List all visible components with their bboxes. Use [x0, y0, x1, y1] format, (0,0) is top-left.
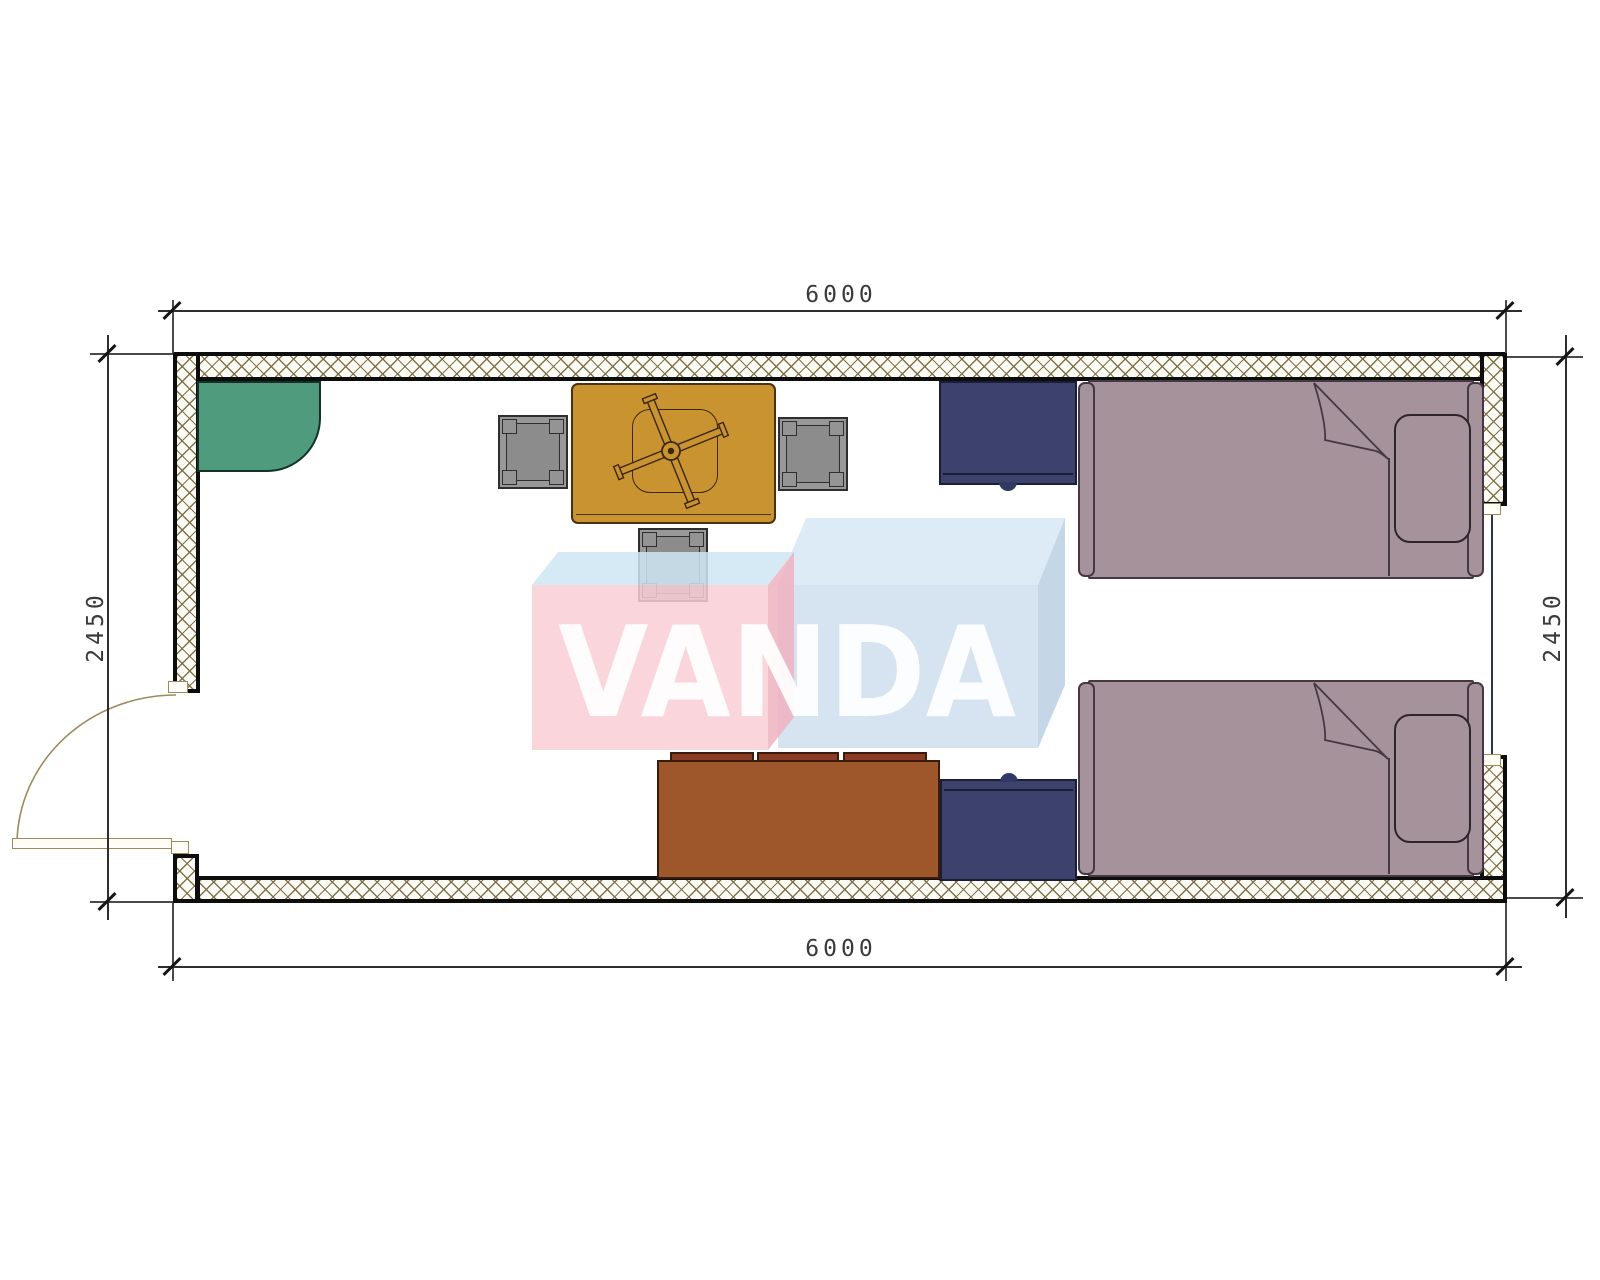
dimension-line-top — [158, 310, 1522, 312]
bed-blanket-fold — [1306, 680, 1398, 772]
stool-right — [778, 417, 848, 491]
bed-blanket-fold — [1306, 380, 1398, 472]
wall-top — [173, 352, 1507, 381]
cabinet-knob — [1000, 773, 1018, 782]
floor-plan: 6000 6000 2450 2450 VANDA — [0, 0, 1600, 1280]
wall-bottom — [196, 876, 1507, 903]
window-glass-line — [1491, 510, 1493, 757]
bed-pillow — [1394, 414, 1471, 543]
sofa-body — [657, 760, 940, 879]
bed-headboard — [1078, 382, 1095, 577]
stool-bottom — [638, 528, 708, 602]
dimension-line-bottom — [158, 966, 1522, 968]
watermark-blue-box-front — [778, 585, 1038, 748]
extension-line — [1507, 356, 1583, 358]
bed-blanket-line — [1388, 458, 1390, 576]
window-cap-top — [1483, 503, 1501, 515]
ceiling-fan-icon — [611, 389, 731, 513]
door-leaf — [12, 838, 172, 849]
watermark-pink-box-side — [768, 552, 794, 750]
stool-left — [498, 415, 568, 489]
door-frame-cap-top — [168, 681, 188, 693]
corner-shelf — [197, 381, 321, 472]
bed-blanket-line — [1388, 758, 1390, 874]
bed-top — [1078, 380, 1484, 579]
sofa — [657, 752, 940, 879]
dimension-label-right: 2450 — [1540, 567, 1566, 687]
dimension-label-top: 6000 — [761, 282, 921, 308]
dining-table — [571, 383, 776, 524]
bed-bottom — [1078, 680, 1484, 877]
cabinet-bottom — [940, 779, 1077, 881]
window-cap-bottom — [1483, 754, 1501, 766]
extension-line — [172, 903, 174, 981]
extension-line — [1505, 903, 1507, 981]
cabinet-top — [939, 381, 1077, 485]
bed-pillow — [1394, 714, 1471, 843]
door-swing-arc — [0, 640, 220, 870]
watermark-brand-text: VANDA — [558, 599, 1016, 746]
wall-right-upper — [1480, 352, 1507, 506]
watermark-blue-box-side — [1038, 518, 1065, 748]
dimension-label-bottom: 6000 — [761, 936, 921, 962]
watermark-blue-box-top — [778, 518, 1065, 585]
watermark-pink-box-front — [532, 585, 768, 750]
cabinet-knob — [999, 482, 1017, 491]
dimension-label-left: 2450 — [83, 567, 109, 687]
bed-headboard — [1078, 682, 1095, 875]
door-frame-cap-hinge — [171, 841, 189, 854]
table-edge-line — [576, 514, 771, 515]
extension-line — [1507, 897, 1583, 899]
